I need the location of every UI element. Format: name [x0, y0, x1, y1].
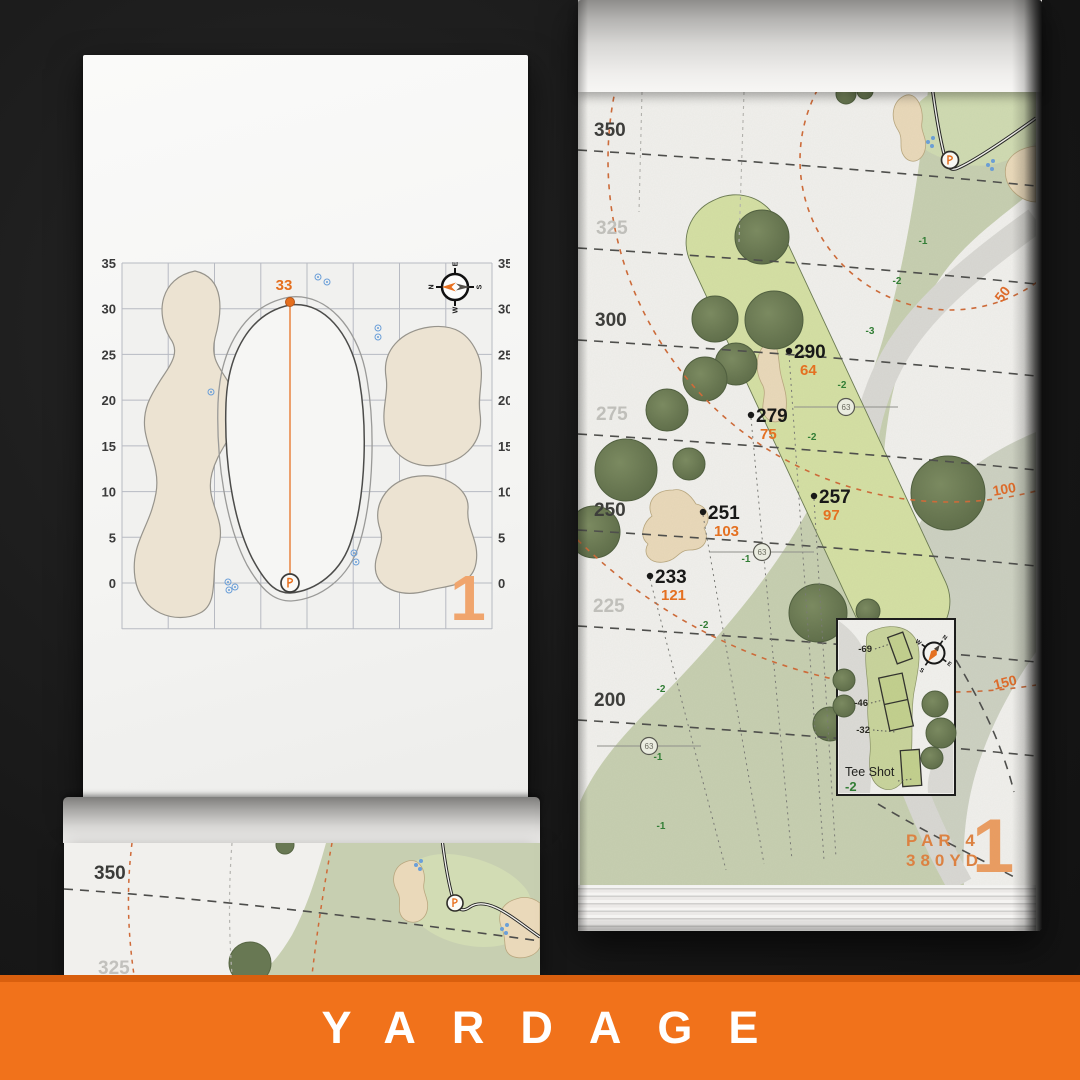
axis-tick: 35 [498, 256, 510, 271]
axis-tick: 30 [102, 302, 116, 317]
axis-tick: 10 [102, 485, 116, 500]
hole-number: 1 [450, 562, 486, 634]
hole-map-page: 63 63 63 -1 -2 -3 -2 -2 -1 -2 -2 -1 -1 [578, 0, 1042, 931]
axis-tick: 30 [498, 302, 510, 317]
page-stack-edges [578, 885, 1036, 931]
yardage-banner: YARDAGE [0, 975, 1080, 1080]
axis-tick: 5 [498, 530, 505, 545]
distance-tick: 325 [98, 958, 130, 975]
axis-tick: 20 [102, 393, 116, 408]
compass-w: W [453, 306, 460, 313]
hole-map-content: 63 63 63 -1 -2 -3 -2 -2 -1 -2 -2 -1 -1 [578, 92, 1036, 885]
bottom-partial-page: 350 325 [64, 843, 540, 975]
compass-e: E [453, 261, 460, 266]
banner-top-strip [0, 975, 1080, 982]
page-left-shadow [578, 0, 588, 931]
bottom-page-map: 350 325 [64, 843, 540, 975]
compass-s: S [477, 284, 484, 289]
axis-tick: 0 [498, 576, 505, 591]
axis-tick: 5 [109, 530, 116, 545]
axis-tick: 15 [498, 439, 510, 454]
distance-tick: 350 [94, 863, 126, 884]
axis-ticks-left: 35 30 25 20 15 10 5 0 [102, 256, 116, 591]
green-detail-map: 35 30 25 20 15 10 5 0 35 30 25 20 15 10 … [100, 243, 510, 643]
page-right-edge [1012, 0, 1042, 931]
green-detail-page: 35 30 25 20 15 10 5 0 35 30 25 20 15 10 … [83, 55, 528, 800]
axis-tick: 35 [102, 256, 116, 271]
paper-grain [578, 92, 1036, 885]
back-edge-dot [286, 298, 295, 307]
axis-tick: 20 [498, 393, 510, 408]
bottom-page-curl [63, 797, 540, 843]
axis-tick: 25 [498, 347, 510, 362]
axis-ticks-right: 35 30 25 20 15 10 5 0 [498, 256, 510, 591]
green-depth-label: 33 [276, 277, 293, 294]
axis-tick: 15 [102, 439, 116, 454]
yardage-book-mockup: 35 30 25 20 15 10 5 0 35 30 25 20 15 10 … [0, 0, 1080, 1080]
axis-tick: 25 [102, 347, 116, 362]
axis-tick: 0 [109, 576, 116, 591]
hole-map: 63 63 63 -1 -2 -3 -2 -2 -1 -2 -2 -1 -1 [578, 92, 1036, 885]
axis-tick: 10 [498, 485, 510, 500]
banner-title: YARDAGE [286, 1002, 795, 1054]
compass-n: N [429, 284, 436, 289]
page-top-curl [578, 0, 1042, 92]
